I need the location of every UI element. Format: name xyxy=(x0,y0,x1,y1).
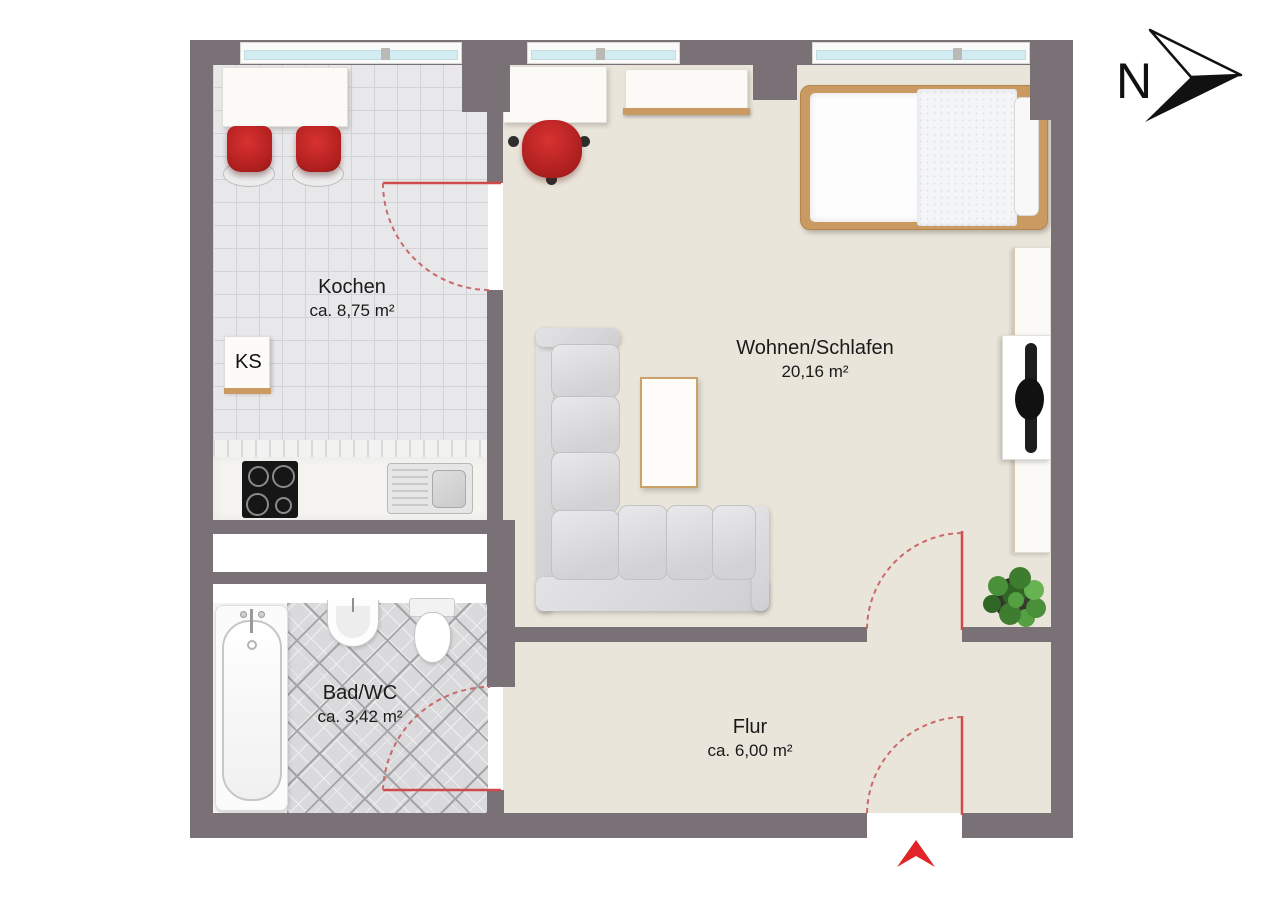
room-area: ca. 6,00 m² xyxy=(707,740,792,761)
wall-left xyxy=(190,40,213,838)
sink-basin xyxy=(432,470,466,508)
room-name: Flur xyxy=(707,715,792,740)
bed-mattress xyxy=(810,93,928,222)
tub-handle xyxy=(240,611,247,618)
desk xyxy=(503,66,607,123)
wall-bottom-left xyxy=(190,813,867,838)
sofa-front xyxy=(536,577,768,611)
toilet-bowl xyxy=(414,612,451,663)
wall-shelf-edge xyxy=(623,108,750,115)
pier-bed-window xyxy=(753,40,797,100)
room-label-wohnen-schlafen: Wohnen/Schlafen 20,16 m² xyxy=(736,336,894,382)
window-glass xyxy=(816,50,1026,60)
office-chair xyxy=(522,120,582,178)
burner xyxy=(275,497,292,514)
wall-bottom-right xyxy=(962,813,1073,838)
tub-faucet xyxy=(250,609,253,633)
wall-living-hall-right xyxy=(962,627,1051,642)
entrance-arrow xyxy=(897,840,935,867)
room-area: ca. 8,75 m² xyxy=(309,300,394,321)
coffee-table xyxy=(640,377,698,488)
wall-bath-hall-upper xyxy=(487,520,515,687)
sofa-cushion xyxy=(618,505,668,580)
room-name: Wohnen/Schlafen xyxy=(736,336,894,361)
window-glass xyxy=(244,50,458,60)
dining-chair xyxy=(296,126,341,172)
window-mullion xyxy=(953,48,962,60)
room-name: Kochen xyxy=(309,275,394,300)
window-living-right xyxy=(812,42,1030,64)
window-living-left xyxy=(527,42,680,64)
wall-right xyxy=(1051,40,1073,838)
chair-caster xyxy=(508,136,519,147)
window-mullion xyxy=(596,48,605,60)
tub-handle xyxy=(258,611,265,618)
wall-bath-hall-lower xyxy=(487,790,504,813)
room-area: 20,16 m² xyxy=(736,361,894,382)
room-area: ca. 3,42 m² xyxy=(317,706,402,727)
dining-table xyxy=(222,67,348,127)
burner xyxy=(272,465,295,488)
wall-living-hall-left xyxy=(487,627,867,642)
burner xyxy=(248,466,269,487)
bed-blanket xyxy=(917,89,1017,226)
wall-kitchen-living-upper xyxy=(487,110,503,183)
tv-screen xyxy=(1015,378,1044,420)
pier-kitchen-living xyxy=(462,40,510,112)
wall-shelf xyxy=(625,69,748,109)
sofa-cushion xyxy=(712,505,756,580)
sofa-cushion xyxy=(551,452,620,512)
room-label-bad-wc: Bad/WC ca. 3,42 m² xyxy=(317,681,402,727)
sink-drainboard xyxy=(392,469,428,508)
fridge-front-edge xyxy=(224,388,271,394)
shaft-cabinet-upper xyxy=(213,534,488,572)
fridge-label: KS xyxy=(235,351,262,374)
north-arrow-icon: N xyxy=(1098,22,1248,132)
sofa-cushion xyxy=(666,505,714,580)
sofa-cushion xyxy=(551,344,620,398)
dining-chair xyxy=(227,126,272,172)
wall-kitchen-living-lower xyxy=(487,290,503,520)
wall-right-top-pier xyxy=(1030,40,1073,120)
window-mullion xyxy=(381,48,390,60)
window-kitchen xyxy=(240,42,462,64)
tub-drain xyxy=(247,640,257,650)
kitchen-backsplash xyxy=(213,440,488,457)
burner xyxy=(246,493,269,516)
room-label-flur: Flur ca. 6,00 m² xyxy=(707,715,792,761)
room-label-kochen: Kochen ca. 8,75 m² xyxy=(309,275,394,321)
north-indicator: N N xyxy=(1098,22,1248,132)
north-label-glyph: N xyxy=(1116,53,1152,109)
floorplan-page: { "compass": { "label": "N" }, "rooms": … xyxy=(0,0,1280,905)
sofa-corner-cushion xyxy=(551,510,620,580)
basin-faucet xyxy=(352,598,354,612)
room-name: Bad/WC xyxy=(317,681,402,706)
sofa-cushion xyxy=(551,396,620,454)
plant xyxy=(1008,592,1024,608)
